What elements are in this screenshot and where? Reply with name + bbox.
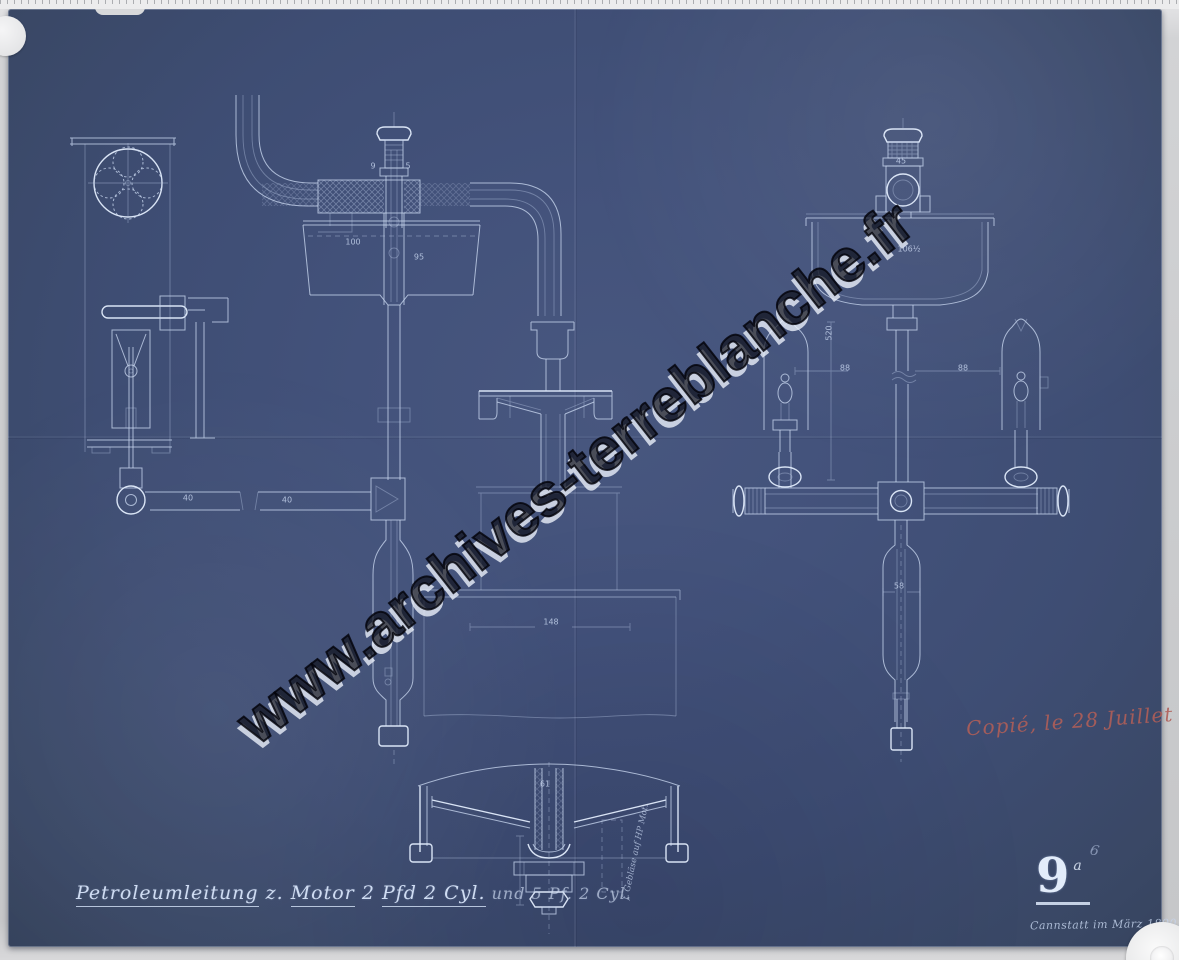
dimension-label: 9 — [370, 162, 375, 171]
drawing-number-suffix: a — [1073, 858, 1081, 874]
drawing-title-part: 2 — [355, 882, 382, 904]
drawing-title-part: Pfd 2 Cyl. — [382, 882, 486, 907]
dimension-label: 88 — [840, 364, 850, 373]
ruler-strip — [0, 0, 1179, 9]
drawing-number: 9 — [1036, 852, 1069, 900]
dimension-label: 61 — [540, 780, 550, 789]
fold-line-horizontal — [8, 436, 1162, 438]
dimension-label: 520 — [825, 325, 834, 340]
drawing-title-part: und 5 Pf. 2 Cyl. — [486, 884, 632, 903]
dimension-label: 5 — [405, 162, 410, 171]
dimension-label: 106½ — [897, 245, 920, 254]
blueprint-sheet — [8, 9, 1162, 947]
drawing-title-part: Motor — [291, 882, 355, 907]
fold-line-vertical — [574, 9, 576, 947]
drawing-title: Petroleumleitung z. Motor 2 Pfd 2 Cyl. u… — [76, 882, 632, 904]
dimension-label: 58 — [894, 582, 904, 591]
drawing-title-part: Petroleumleitung — [76, 882, 259, 907]
dimension-label: 95 — [414, 253, 424, 262]
dimension-label: 45 — [896, 157, 906, 166]
drawing-number-block: 9a — [1036, 852, 1090, 905]
scanned-blueprint-page: www.archives-terreblanche.fr www.archive… — [0, 0, 1179, 960]
dimension-label: 148 — [543, 618, 558, 627]
dimension-label: 100 — [345, 238, 360, 247]
dimension-label: 40 — [282, 496, 292, 505]
dimension-label: 40 — [183, 494, 193, 503]
drawing-title-part: z. — [259, 882, 291, 904]
dimension-label: 88 — [958, 364, 968, 373]
